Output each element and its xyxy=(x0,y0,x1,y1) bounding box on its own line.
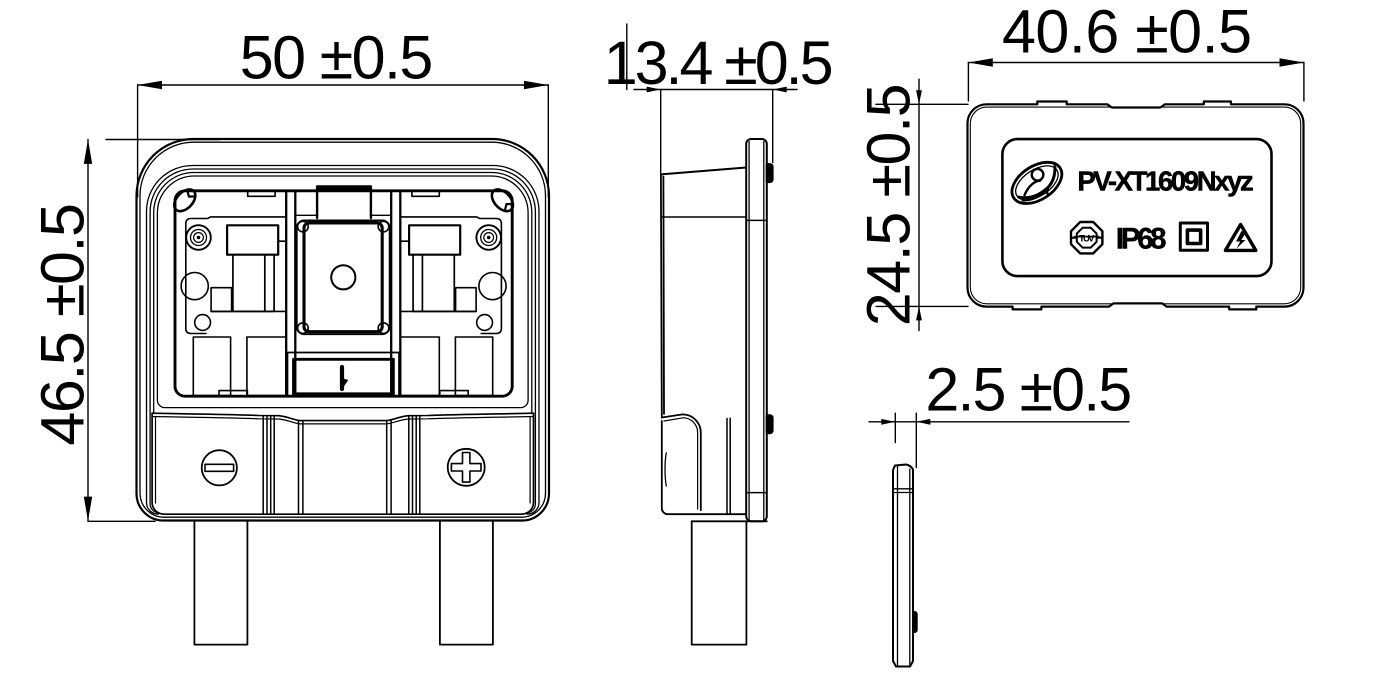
svg-text:40.6 ±0.5: 40.6 ±0.5 xyxy=(1002,0,1252,65)
svg-text:24.5 ±0.5: 24.5 ±0.5 xyxy=(855,83,923,326)
svg-text:50 ±0.5: 50 ±0.5 xyxy=(240,24,433,92)
svg-text:TUV: TUV xyxy=(1079,233,1095,244)
svg-text:46.5 ±0.5: 46.5 ±0.5 xyxy=(29,203,97,446)
svg-text:PV-XT1609Nxyz: PV-XT1609Nxyz xyxy=(1077,166,1253,197)
svg-text:13.4 ±0.5: 13.4 ±0.5 xyxy=(604,29,834,97)
svg-text:IP68: IP68 xyxy=(1116,223,1167,256)
svg-text:2.5 ±0.5: 2.5 ±0.5 xyxy=(925,356,1132,424)
